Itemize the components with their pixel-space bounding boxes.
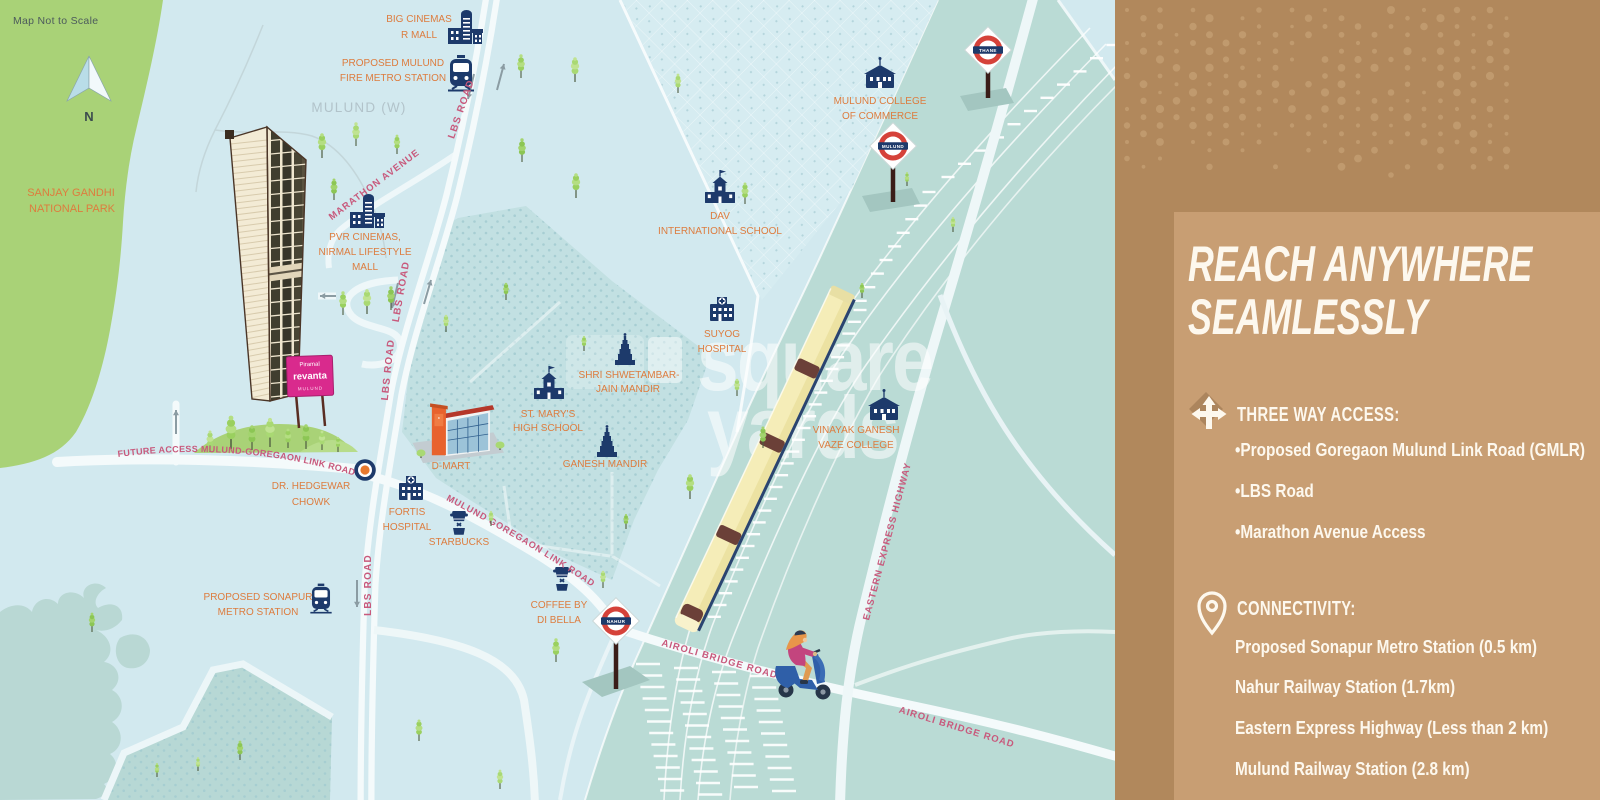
svg-text:revanta: revanta [293,370,328,382]
svg-text:ST. MARY'S: ST. MARY'S [521,409,576,420]
svg-text:FORTIS: FORTIS [389,507,426,518]
svg-text:METRO STATION: METRO STATION [218,607,299,618]
svg-text:PVR CINEMAS,: PVR CINEMAS, [329,232,401,243]
svg-text:NIRMAL LIFESTYLE: NIRMAL LIFESTYLE [319,247,412,258]
svg-text:DI BELLA: DI BELLA [537,615,581,626]
svg-text:PROPOSED MULUND: PROPOSED MULUND [342,58,444,69]
svg-text:MALL: MALL [352,262,379,273]
svg-text:SEAMLESSLY: SEAMLESSLY [1188,290,1431,345]
svg-text:N: N [84,109,93,124]
svg-text:•Marathon Avenue Access: •Marathon Avenue Access [1235,522,1426,543]
svg-text:SHRI SHWETAMBAR-: SHRI SHWETAMBAR- [579,370,680,381]
svg-text:•Proposed Goregaon Mulund Link: •Proposed Goregaon Mulund Link Road (GML… [1235,440,1585,461]
svg-text:CHOWK: CHOWK [292,497,331,508]
svg-text:CONNECTIVITY:: CONNECTIVITY: [1237,597,1356,620]
svg-text:THANE: THANE [979,48,997,53]
svg-text:D-MART: D-MART [432,461,471,472]
svg-text:Mulund Railway Station (2.8 km: Mulund Railway Station (2.8 km) [1235,759,1470,780]
svg-text:Proposed Sonapur Metro Station: Proposed Sonapur Metro Station (0.5 km) [1235,637,1537,658]
svg-text:INTERNATIONAL SCHOOL: INTERNATIONAL SCHOOL [658,226,782,237]
svg-text:MULUND: MULUND [298,386,323,392]
svg-text:Piramal: Piramal [299,362,320,369]
svg-text:Eastern Express Highway (Less: Eastern Express Highway (Less than 2 km) [1235,718,1548,739]
svg-text:FIRE METRO STATION: FIRE METRO STATION [340,73,446,84]
svg-text:VAZE COLLEGE: VAZE COLLEGE [818,440,894,451]
svg-text:MULUND COLLEGE: MULUND COLLEGE [834,96,927,107]
svg-text:REACH ANYWHERE: REACH ANYWHERE [1188,237,1534,292]
svg-text:MULUND: MULUND [882,144,905,149]
svg-text:LBS ROAD: LBS ROAD [363,554,374,616]
svg-text:NATIONAL PARK: NATIONAL PARK [29,203,116,215]
svg-text:HOSPITAL: HOSPITAL [698,344,747,355]
svg-text:•LBS Road: •LBS Road [1235,481,1314,502]
svg-text:MULUND (W): MULUND (W) [311,100,406,115]
svg-text:Map Not to Scale: Map Not to Scale [13,15,98,27]
svg-text:DR. HEDGEWAR: DR. HEDGEWAR [272,481,351,492]
svg-text:OF COMMERCE: OF COMMERCE [842,111,918,122]
svg-text:NAHUR: NAHUR [607,619,626,624]
svg-text:Nahur Railway Station (1.7km): Nahur Railway Station (1.7km) [1235,677,1455,698]
svg-text:DAV: DAV [710,211,730,222]
svg-text:COFFEE BY: COFFEE BY [531,600,588,611]
svg-text:STARBUCKS: STARBUCKS [429,537,490,548]
svg-text:BIG CINEMAS: BIG CINEMAS [386,14,452,25]
svg-text:GANESH MANDIR: GANESH MANDIR [563,459,647,470]
svg-text:JAIN MANDIR: JAIN MANDIR [596,384,660,395]
svg-text:R MALL: R MALL [401,30,438,41]
svg-text:PROPOSED SONAPUR: PROPOSED SONAPUR [204,592,313,603]
svg-text:SUYOG: SUYOG [704,329,740,340]
svg-text:HIGH SCHOOL: HIGH SCHOOL [513,423,583,434]
svg-text:SANJAY GANDHI: SANJAY GANDHI [27,187,115,199]
svg-text:THREE WAY ACCESS:: THREE WAY ACCESS: [1237,403,1400,426]
svg-text:HOSPITAL: HOSPITAL [383,522,432,533]
svg-text:VINAYAK GANESH: VINAYAK GANESH [813,425,900,436]
